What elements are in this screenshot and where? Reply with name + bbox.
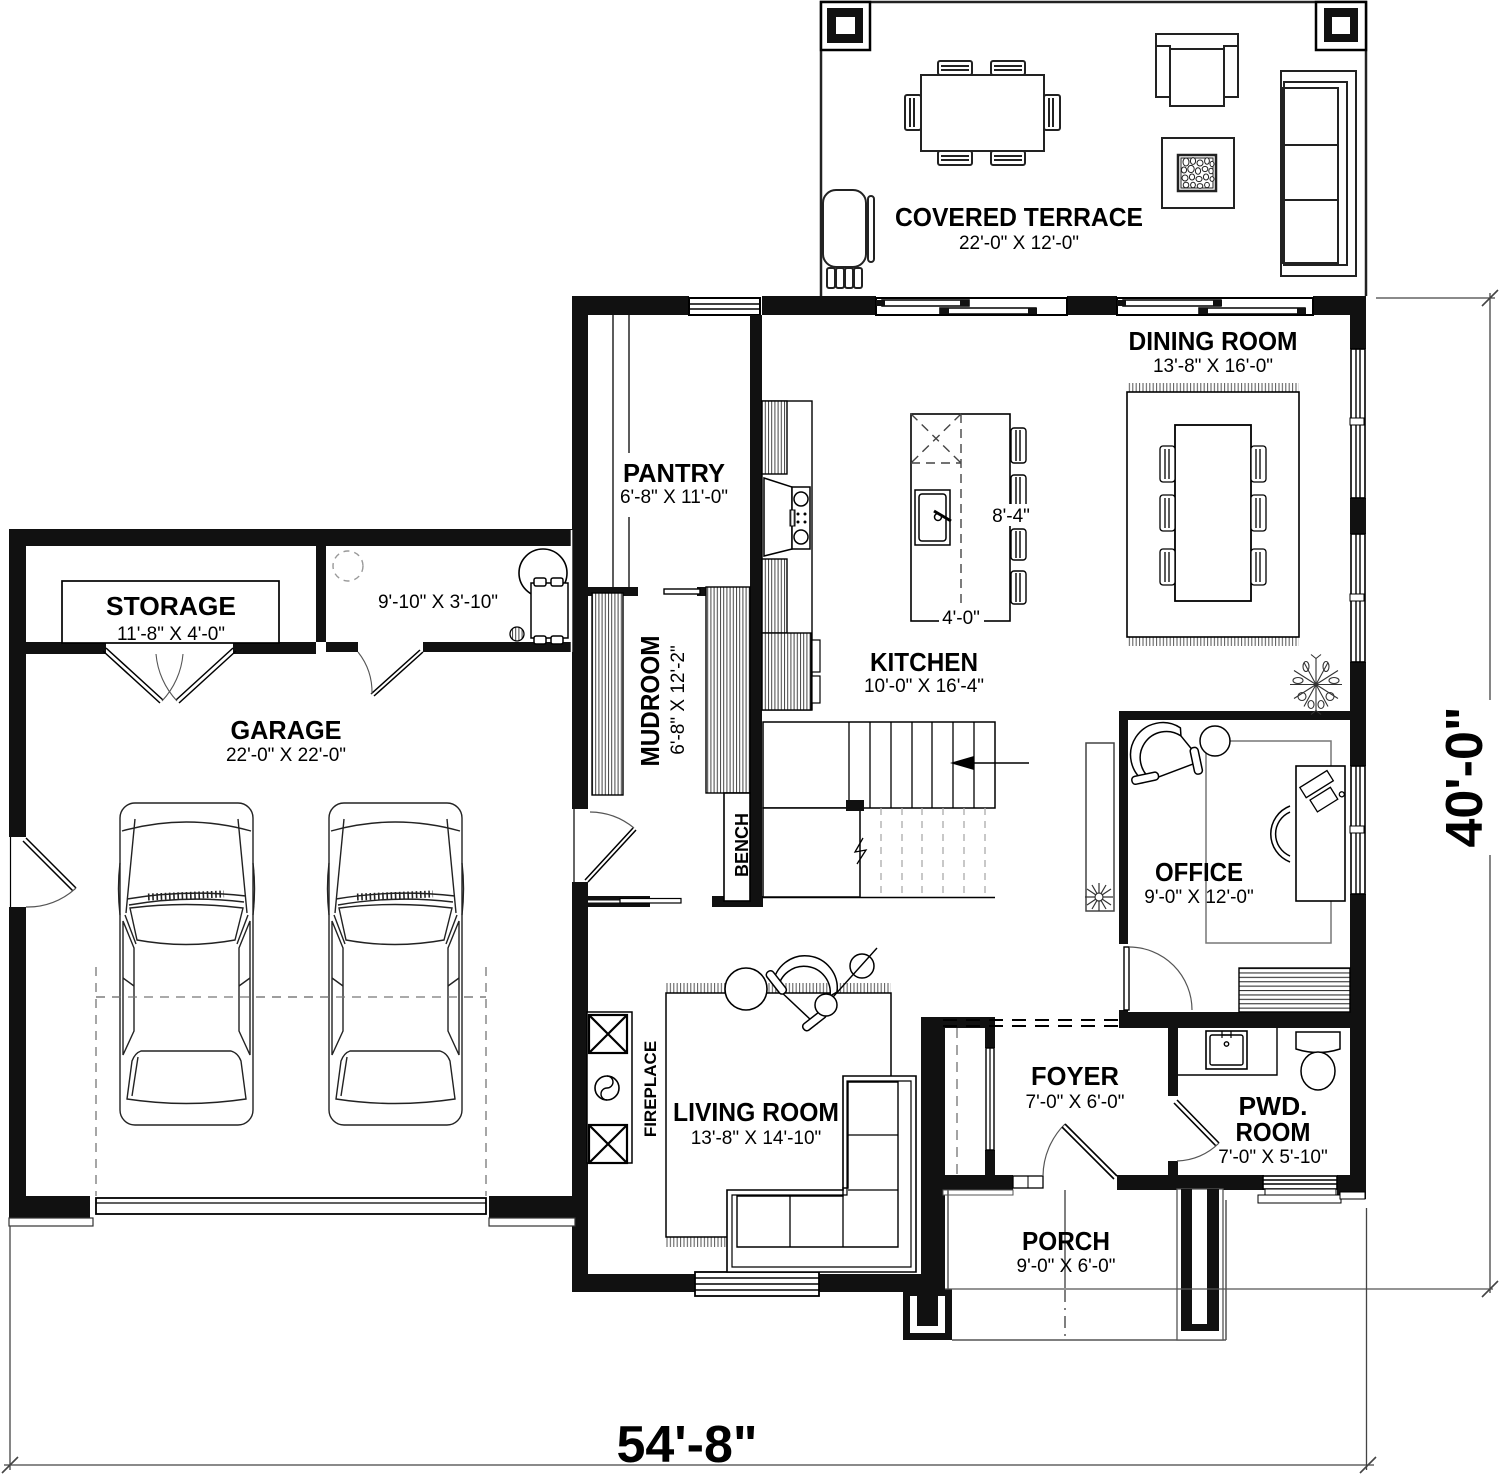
svg-text:8'-4": 8'-4"	[992, 506, 1030, 527]
svg-text:40'-0": 40'-0"	[1436, 706, 1494, 847]
svg-text:22'-0" X 22'-0": 22'-0" X 22'-0"	[226, 745, 346, 766]
svg-text:BENCH: BENCH	[732, 813, 752, 877]
svg-text:GARAGE: GARAGE	[231, 715, 342, 745]
svg-text:6'-8" X 11'-0": 6'-8" X 11'-0"	[620, 487, 728, 508]
svg-text:10'-0" X 16'-4": 10'-0" X 16'-4"	[864, 676, 984, 697]
svg-text:13'-8" X 16'-0": 13'-8" X 16'-0"	[1153, 356, 1273, 377]
svg-text:7'-0" X 5'-10": 7'-0" X 5'-10"	[1218, 1147, 1327, 1168]
svg-text:STORAGE: STORAGE	[106, 591, 236, 621]
svg-text:9'-0" X 6'-0": 9'-0" X 6'-0"	[1017, 1256, 1116, 1277]
svg-text:9'-0" X 12'-0": 9'-0" X 12'-0"	[1144, 887, 1253, 908]
svg-text:13'-8" X 14'-10": 13'-8" X 14'-10"	[691, 1128, 822, 1149]
svg-text:LIVING ROOM: LIVING ROOM	[673, 1097, 839, 1127]
svg-text:54'-8": 54'-8"	[616, 1416, 757, 1474]
svg-text:KITCHEN: KITCHEN	[870, 647, 978, 677]
svg-text:9'-10" X 3'-10": 9'-10" X 3'-10"	[378, 592, 498, 613]
svg-text:FOYER: FOYER	[1031, 1061, 1119, 1091]
svg-text:MUDROOM: MUDROOM	[635, 636, 665, 767]
svg-text:4'-0": 4'-0"	[942, 608, 980, 629]
svg-text:DINING ROOM: DINING ROOM	[1129, 326, 1298, 356]
svg-text:COVERED TERRACE: COVERED TERRACE	[895, 202, 1143, 232]
svg-text:PORCH: PORCH	[1022, 1226, 1110, 1256]
svg-text:ROOM: ROOM	[1236, 1117, 1311, 1147]
svg-text:6'-8" X 12'-2": 6'-8" X 12'-2"	[668, 645, 689, 754]
svg-text:PANTRY: PANTRY	[623, 458, 725, 488]
svg-text:11'-8" X 4'-0": 11'-8" X 4'-0"	[117, 624, 225, 645]
svg-text:OFFICE: OFFICE	[1155, 857, 1243, 887]
svg-text:FIREPLACE: FIREPLACE	[641, 1041, 660, 1137]
svg-text:22'-0" X 12'-0": 22'-0" X 12'-0"	[959, 233, 1079, 254]
svg-text:7'-0" X 6'-0": 7'-0" X 6'-0"	[1026, 1092, 1125, 1113]
